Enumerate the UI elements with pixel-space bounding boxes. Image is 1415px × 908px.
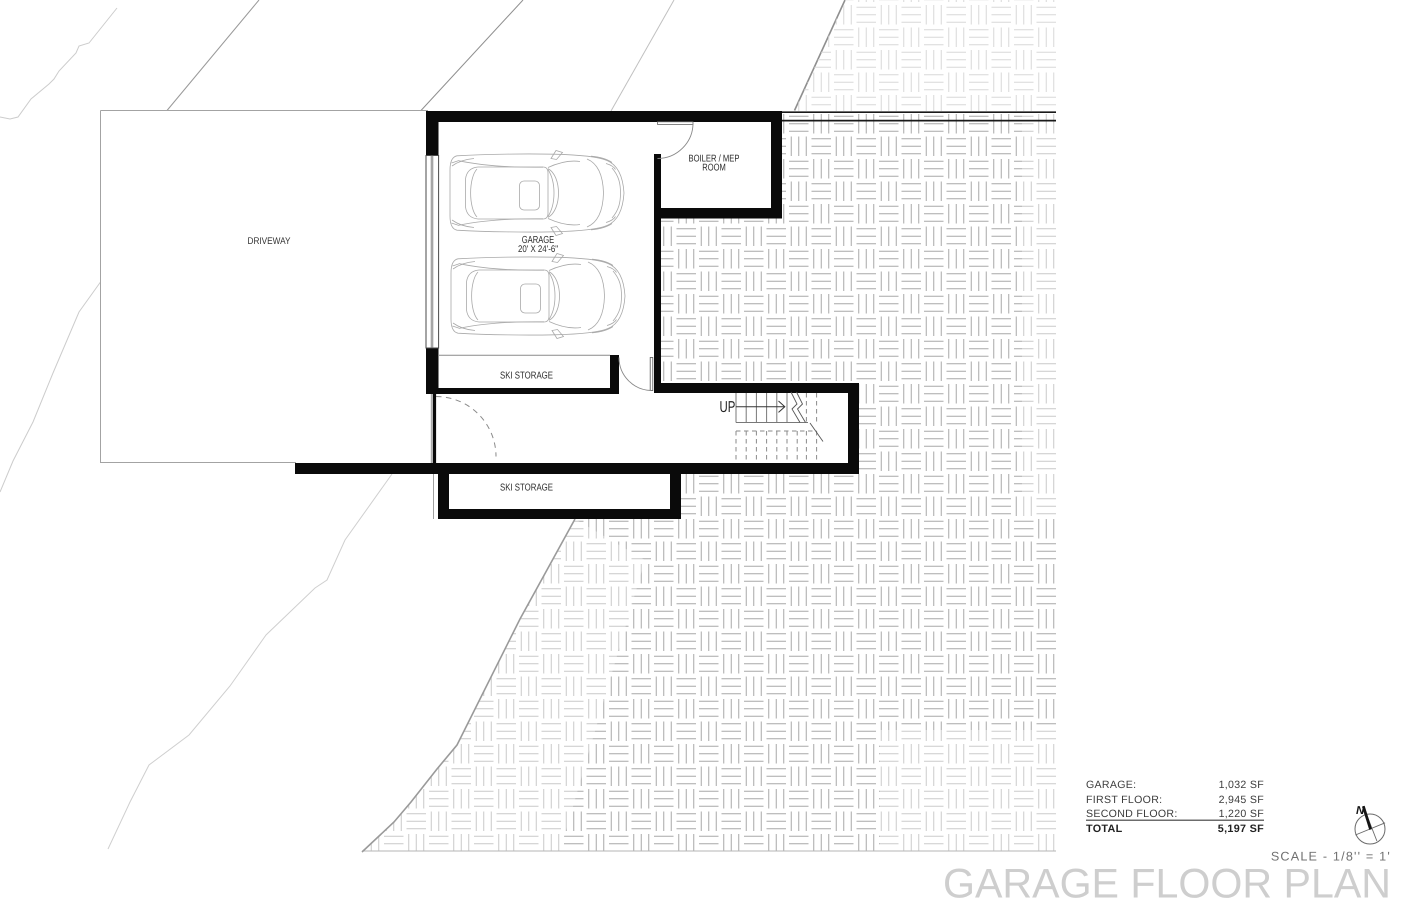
svg-text:20' X 24'-6": 20' X 24'-6" bbox=[518, 244, 558, 255]
svg-text:1,220 SF: 1,220 SF bbox=[1219, 808, 1265, 820]
svg-text:FIRST FLOOR:: FIRST FLOOR: bbox=[1086, 794, 1162, 806]
svg-text:SKI STORAGE: SKI STORAGE bbox=[500, 370, 553, 381]
svg-text:DRIVEWAY: DRIVEWAY bbox=[248, 236, 291, 247]
svg-text:5,197 SF: 5,197 SF bbox=[1218, 823, 1264, 835]
svg-text:UP: UP bbox=[720, 399, 736, 416]
svg-text:SECOND FLOOR:: SECOND FLOOR: bbox=[1086, 808, 1178, 820]
svg-text:SKI STORAGE: SKI STORAGE bbox=[500, 483, 553, 494]
svg-text:ROOM: ROOM bbox=[702, 163, 726, 174]
svg-text:GARAGE:: GARAGE: bbox=[1086, 779, 1136, 791]
svg-text:TOTAL: TOTAL bbox=[1086, 823, 1123, 835]
svg-text:GARAGE FLOOR PLAN: GARAGE FLOOR PLAN bbox=[943, 860, 1391, 907]
svg-text:1,032 SF: 1,032 SF bbox=[1219, 779, 1265, 791]
svg-text:N: N bbox=[1356, 805, 1365, 817]
svg-text:2,945 SF: 2,945 SF bbox=[1219, 794, 1265, 806]
